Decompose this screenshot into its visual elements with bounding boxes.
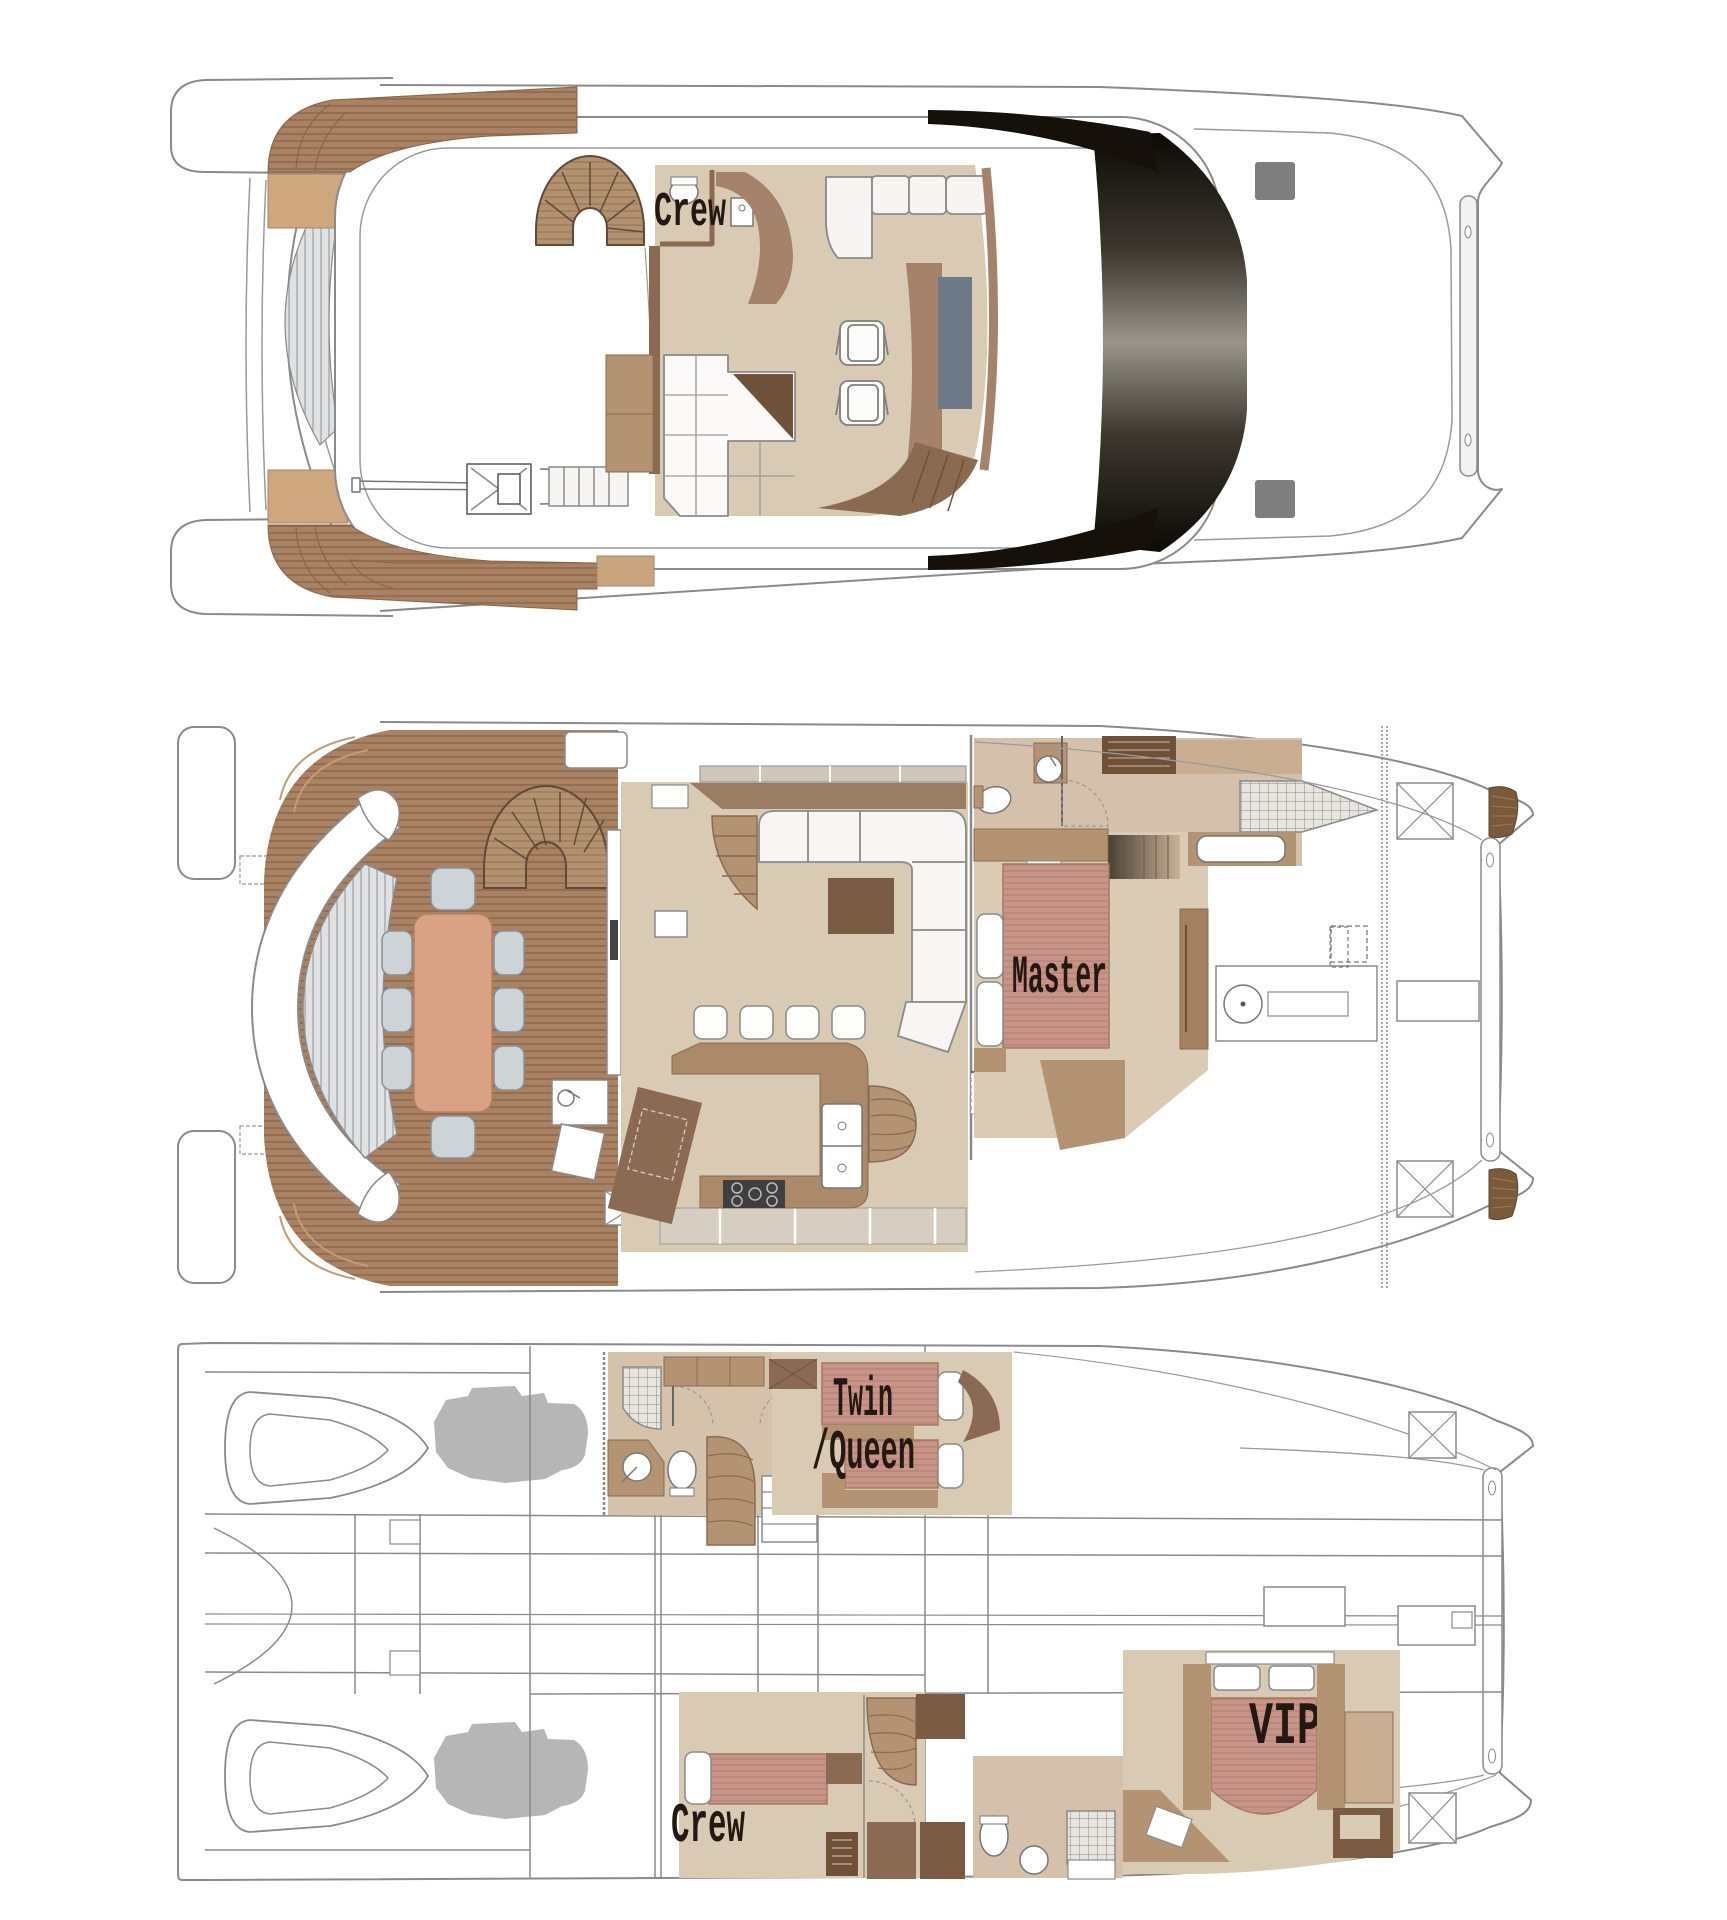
svg-text:Crew: Crew	[654, 186, 726, 240]
svg-text:VIP: VIP	[1249, 1694, 1321, 1762]
svg-text:Master: Master	[1012, 948, 1107, 1009]
svg-text:Crew: Crew	[671, 1794, 745, 1858]
svg-text:/Queen: /Queen	[812, 1421, 915, 1485]
